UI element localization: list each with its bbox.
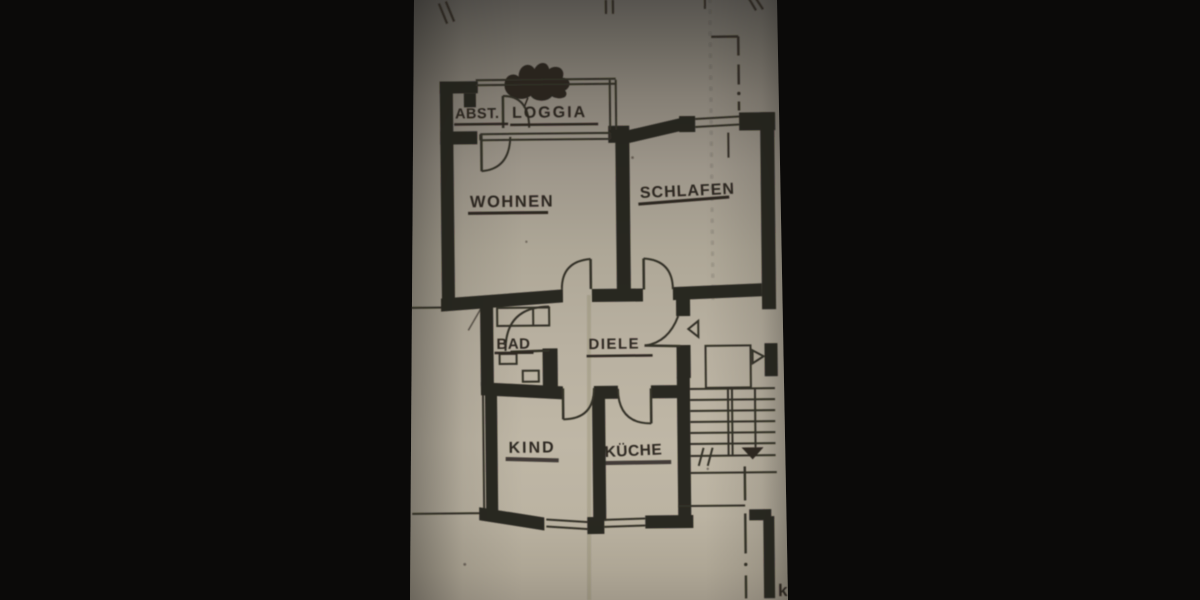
entrance-wall-lower: [676, 345, 690, 378]
loggia-corner-wall: [608, 126, 629, 143]
room-label-wohnen-underline: [468, 212, 548, 213]
schlafen-window-pier: [679, 116, 695, 132]
bad-left-wall: [480, 306, 494, 386]
room-label-wohnen: WOHNEN: [470, 192, 554, 211]
room-label-kueche-group: KÜCHE: [602, 441, 671, 465]
room-label-bad: BAD: [496, 336, 530, 353]
stair-walking-line: [755, 388, 756, 447]
left-outer-wall: [440, 81, 455, 309]
diele-tee-wall: [592, 288, 643, 302]
kueche-top-piece: [651, 385, 678, 398]
partial-letter-bottom-right: k: [778, 581, 788, 600]
room-label-diele: DIELE: [588, 336, 640, 354]
stairwell-right-wall: [764, 343, 777, 376]
floor-plan-canvas: ABST. LOGGIA WOHNEN SCHLAFEN BAD DIELE K…: [0, 0, 1200, 600]
right-outer-wall: [760, 112, 776, 309]
room-label-kueche: KÜCHE: [604, 441, 662, 461]
photo-of-floor-plan: ABST. LOGGIA WOHNEN SCHLAFEN BAD DIELE K…: [0, 0, 1200, 600]
abst-bottom-wall: [440, 131, 477, 144]
room-label-abst: ABST.: [455, 106, 500, 122]
abst-pillar: [464, 93, 476, 107]
kind-kueche-bottom-corner: [587, 517, 604, 534]
room-label-loggia-underline: [510, 124, 598, 125]
bad-right-wall: [543, 348, 558, 386]
wohnen-schlafen-divider-wall: [615, 141, 631, 292]
room-label-kind: KIND: [508, 439, 555, 456]
kueche-right-wall: [677, 377, 691, 519]
room-label-abst-underline: [454, 124, 508, 125]
room-label-loggia: LOGGIA: [512, 104, 587, 122]
understairs-right-wall: [763, 516, 775, 598]
room-label-kind-underline: [506, 458, 559, 461]
entrance-wall-upper: [676, 292, 690, 316]
abst-top-wall: [440, 81, 478, 93]
kind-left-wall: [485, 391, 498, 513]
room-label-diele-underline: [587, 355, 653, 356]
